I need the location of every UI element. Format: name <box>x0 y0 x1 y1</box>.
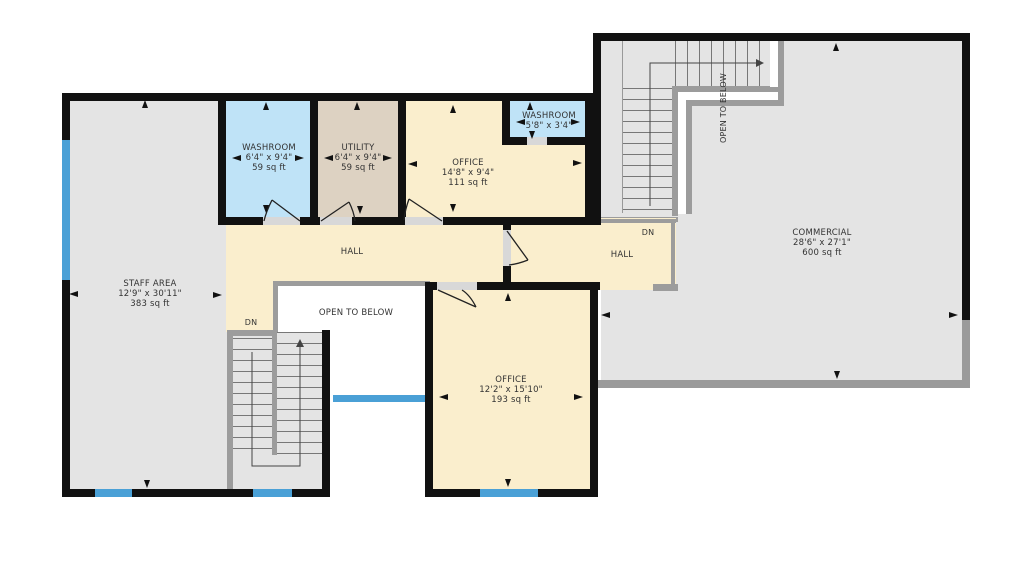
room-label-staff-area: STAFF AREA 12'9" x 30'11" 383 sq ft <box>85 279 215 309</box>
room-label-commercial: COMMERCIAL 28'6" x 27'1" 600 sq ft <box>757 228 887 258</box>
room-label-washroom-small: WASHROOM 5'8" x 3'4" <box>484 111 614 131</box>
open-to-below-label-right: OPEN TO BELOW <box>719 43 729 173</box>
dimension-arrows <box>69 43 958 488</box>
room-label-office-upper: OFFICE 14'8" x 9'4" 111 sq ft <box>403 158 533 188</box>
room-label-hall-right: HALL <box>557 250 687 260</box>
dn-label-left: DN <box>186 318 316 328</box>
room-label-office-lower: OFFICE 12'2" x 15'10" 193 sq ft <box>446 375 576 405</box>
dn-label-right: DN <box>583 228 713 238</box>
floor-plan: STAFF AREA 12'9" x 30'11" 383 sq ft WASH… <box>0 0 1024 565</box>
open-to-below-label-left: OPEN TO BELOW <box>291 308 421 318</box>
room-label-hall-left: HALL <box>287 247 417 257</box>
